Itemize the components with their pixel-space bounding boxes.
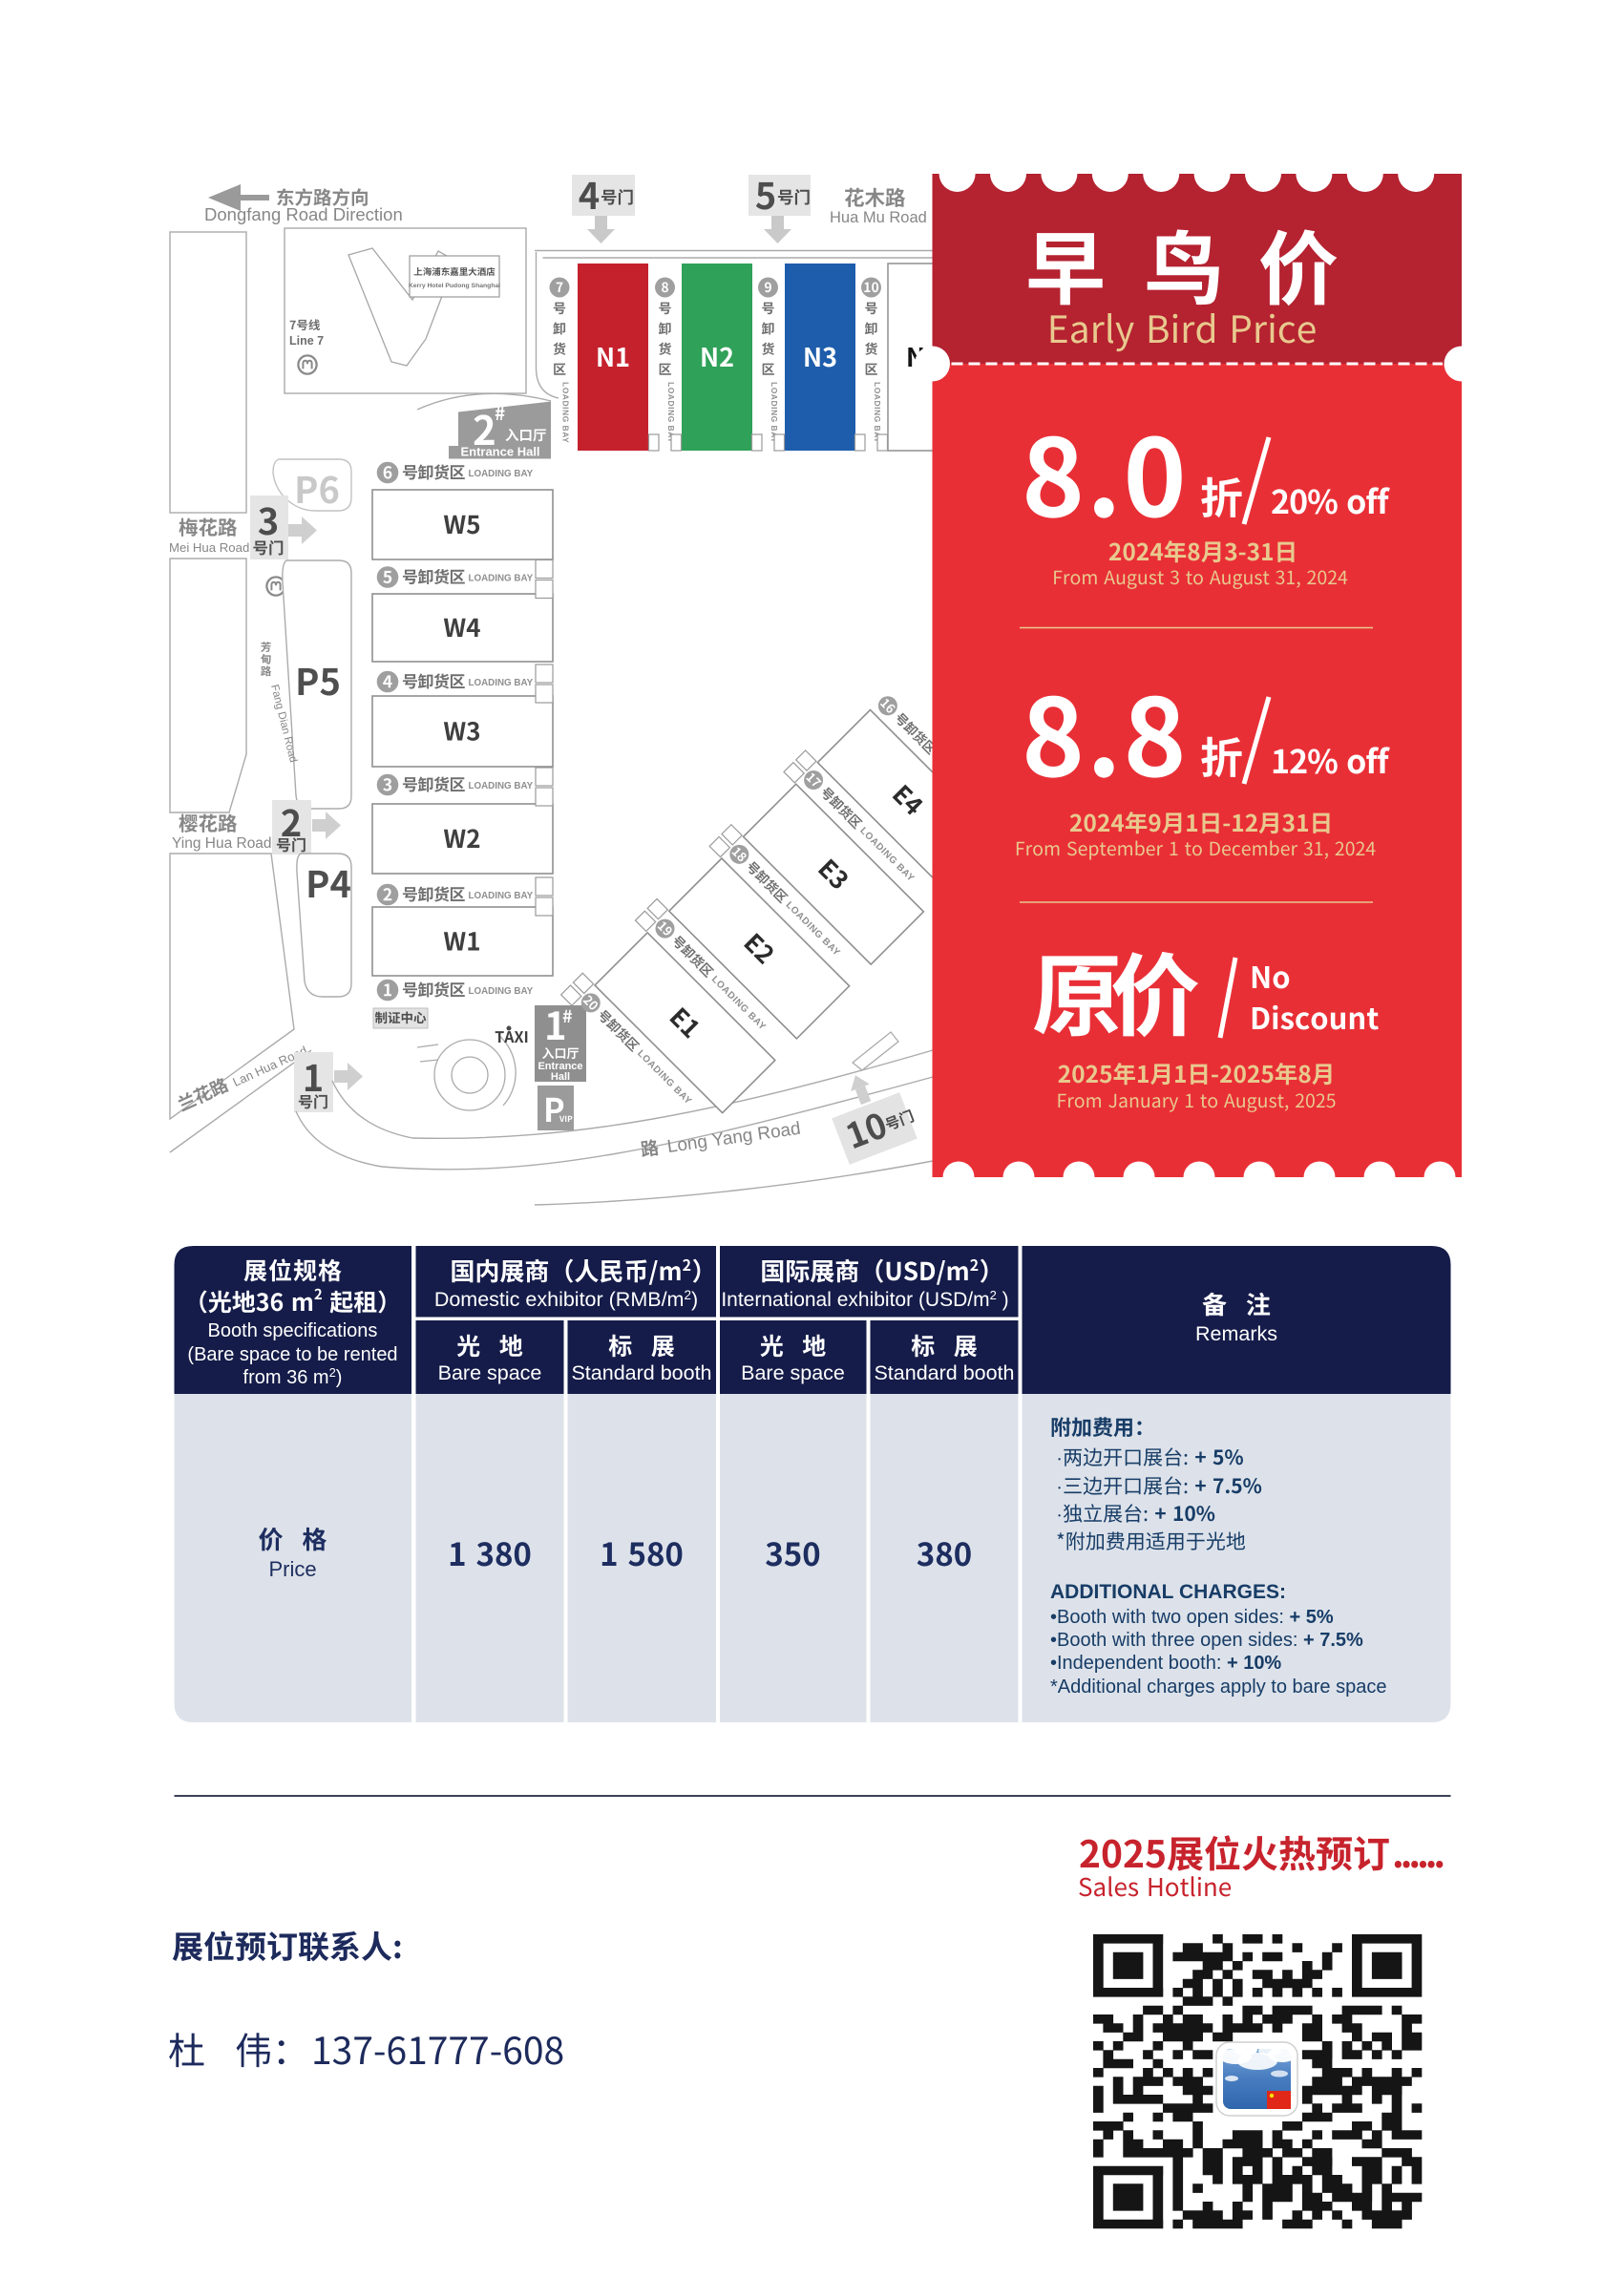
svg-text:(Bare space to be rented: (Bare space to be rented bbox=[187, 1344, 397, 1365]
svg-text:Kerry Hotel Pudong Shanghai: Kerry Hotel Pudong Shanghai bbox=[409, 283, 500, 289]
svg-text:Ying Hua Road: Ying Hua Road bbox=[172, 835, 272, 852]
svg-text:LOADING BAY: LOADING BAY bbox=[469, 678, 534, 688]
svg-text:Hua Mu Road: Hua Mu Road bbox=[830, 209, 927, 226]
svg-text:Mei Hua Road: Mei Hua Road bbox=[169, 540, 249, 555]
svg-text:•Booth with two open sides: +: •Booth with two open sides: + 5% bbox=[1050, 1607, 1334, 1628]
svg-text:Bare space: Bare space bbox=[741, 1361, 845, 1384]
svg-text:LOADING BAY: LOADING BAY bbox=[469, 781, 534, 791]
svg-text:•Independent booth: + 10%: •Independent booth: + 10% bbox=[1050, 1653, 1281, 1674]
svg-text:Bare space: Bare space bbox=[438, 1361, 542, 1384]
svg-text:Long Yang Road: Long Yang Road bbox=[666, 1119, 802, 1157]
svg-text:Standard booth: Standard booth bbox=[571, 1361, 711, 1384]
svg-text:Domestic exhibitor (RMB/m2): Domestic exhibitor (RMB/m2) bbox=[434, 1288, 698, 1311]
svg-text:Standard booth: Standard booth bbox=[874, 1361, 1014, 1384]
svg-text:Remarks: Remarks bbox=[1195, 1322, 1277, 1345]
svg-text:*Additional charges apply to b: *Additional charges apply to bare space bbox=[1050, 1677, 1386, 1698]
svg-text:International exhibitor (USD/m: International exhibitor (USD/m2 ) bbox=[721, 1288, 1008, 1311]
svg-text:Booth specifications: Booth specifications bbox=[208, 1320, 378, 1341]
svg-text:Hall: Hall bbox=[551, 1071, 570, 1083]
svg-text:LOADING BAY: LOADING BAY bbox=[469, 573, 534, 583]
svg-text:Price: Price bbox=[268, 1557, 316, 1581]
svg-text:Line 7: Line 7 bbox=[289, 334, 324, 348]
svg-text:LOADING BAY: LOADING BAY bbox=[469, 986, 534, 997]
svg-text:ADDITIONAL CHARGES:: ADDITIONAL CHARGES: bbox=[1050, 1581, 1286, 1603]
svg-text:LOADING BAY: LOADING BAY bbox=[469, 469, 534, 479]
svg-text:Dongfang Road Direction: Dongfang Road Direction bbox=[204, 204, 403, 224]
svg-text:•Booth with three open sides:: •Booth with three open sides: + 7.5% bbox=[1050, 1630, 1363, 1651]
svg-text:Entrance Hall: Entrance Hall bbox=[460, 445, 539, 459]
svg-text:LOADING BAY: LOADING BAY bbox=[561, 382, 571, 443]
svg-text:LOADING BAY: LOADING BAY bbox=[469, 891, 534, 901]
svg-text:from 36 m2): from 36 m2) bbox=[243, 1365, 343, 1388]
